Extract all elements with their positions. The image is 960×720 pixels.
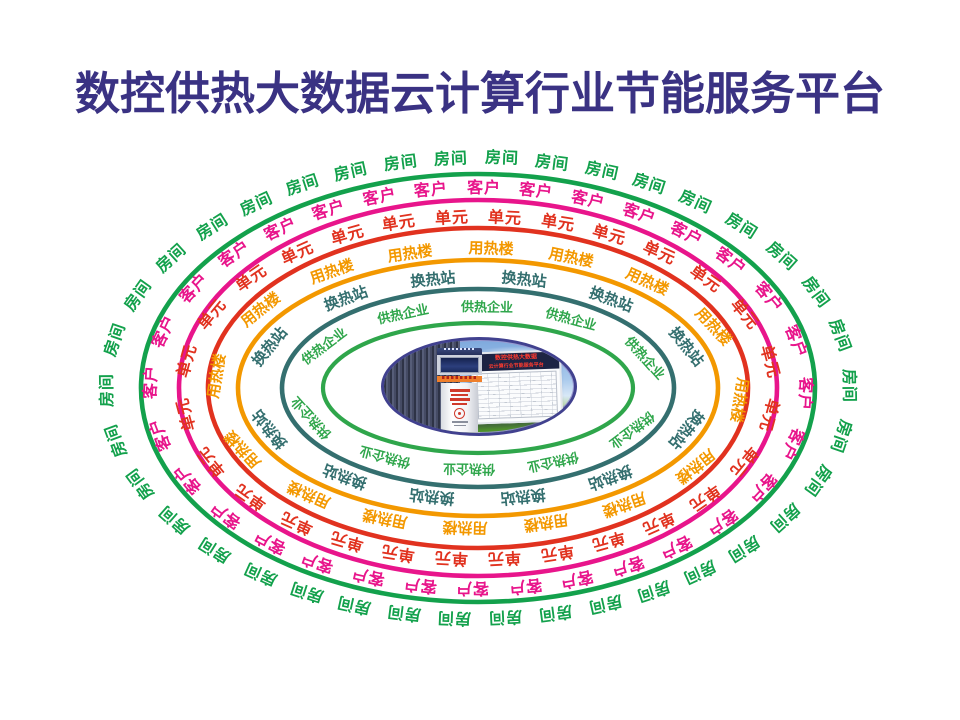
customer-label: 客户 — [744, 469, 779, 505]
unit-label: 单元 — [685, 480, 722, 513]
kiosk-header-bar — [437, 348, 482, 355]
room-label: 房间 — [488, 608, 523, 626]
room-label: 房间 — [827, 417, 853, 454]
heat-supply-enterprise-label: 供热企业 — [443, 462, 495, 476]
heat-building-label: 用热楼 — [728, 377, 750, 424]
heat-exchange-station-label: 换热站 — [666, 325, 706, 369]
kiosk-fine-print — [452, 421, 468, 423]
customer-label: 客户 — [402, 574, 438, 594]
room-label: 房间 — [825, 318, 852, 355]
unit-label: 单元 — [329, 223, 366, 248]
kiosk-red-text-mark — [452, 403, 467, 405]
board-title-line2: 云计算行业节能服务平台 — [489, 362, 544, 370]
room-label: 房间 — [766, 500, 802, 535]
kiosk-screen — [437, 355, 482, 375]
unit-label: 单元 — [487, 210, 522, 228]
unit-label: 单元 — [279, 239, 317, 267]
heat-building-label: 用热楼 — [309, 258, 356, 287]
customer-label: 客户 — [795, 377, 813, 412]
unit-label: 单元 — [589, 528, 626, 553]
unit-label: 单元 — [640, 240, 678, 269]
customer-label: 客户 — [751, 279, 785, 315]
board-title-line1: 数控供热大数据 — [495, 354, 537, 362]
room-label: 房间 — [537, 602, 573, 622]
room-label: 房间 — [288, 578, 325, 604]
heat-building-label: 用热楼 — [673, 446, 718, 486]
heat-supply-enterprise-label: 供热企业 — [527, 450, 581, 473]
unit-label: 单元 — [540, 214, 576, 235]
room-label: 房间 — [586, 592, 623, 615]
customer-label: 客户 — [362, 187, 398, 209]
heat-supply-enterprise-label: 供热企业 — [607, 409, 657, 450]
kiosk-body — [441, 383, 478, 432]
customer-label: 客户 — [310, 198, 347, 223]
customer-label: 客户 — [467, 181, 501, 197]
unit-label: 单元 — [539, 541, 575, 562]
heat-building-label: 用热楼 — [693, 305, 735, 348]
room-label: 房间 — [681, 557, 719, 586]
kiosk-machine — [437, 345, 482, 432]
customer-label: 客户 — [299, 548, 336, 574]
customer-label: 客户 — [455, 579, 489, 595]
heat-supply-enterprise-label: 供热企业 — [289, 395, 333, 442]
room-label: 房间 — [100, 373, 116, 407]
kiosk-led-strip — [437, 376, 482, 382]
heat-building-label: 用热楼 — [600, 489, 647, 518]
room-label: 房间 — [677, 188, 715, 217]
room-label: 房间 — [485, 151, 520, 168]
heat-building-label: 用热楼 — [285, 478, 332, 510]
kiosk-header-text-marks — [444, 348, 475, 350]
unit-label: 单元 — [591, 223, 628, 248]
heat-building-label: 用热楼 — [547, 246, 594, 270]
unit-label: 单元 — [435, 210, 470, 228]
customer-label: 客户 — [143, 365, 161, 400]
heat-building-label: 用热楼 — [387, 243, 434, 264]
heat-building-label: 用热楼 — [522, 512, 569, 533]
customer-label: 客户 — [657, 532, 695, 561]
kiosk-screen-display — [440, 357, 479, 373]
customer-label: 客户 — [147, 415, 174, 452]
heat-supply-enterprise-label: 供热企业 — [376, 303, 430, 326]
room-label: 房间 — [630, 172, 667, 198]
heat-exchange-station-label: 换热站 — [409, 486, 455, 505]
heat-supply-enterprise-label: 供热企业 — [358, 444, 412, 470]
unit-label: 单元 — [175, 343, 199, 380]
customer-label: 客户 — [262, 215, 300, 244]
customer-label: 客户 — [507, 575, 542, 594]
room-label: 房间 — [724, 532, 761, 564]
room-label: 房间 — [534, 154, 570, 174]
customer-label: 客户 — [558, 567, 594, 589]
heat-exchange-station-label: 换热站 — [322, 285, 369, 314]
heat-building-label: 用热楼 — [222, 427, 264, 470]
unit-label: 单元 — [726, 443, 760, 479]
kiosk-red-text-mark — [450, 398, 470, 400]
room-label: 房间 — [840, 369, 856, 403]
room-label: 房间 — [104, 421, 131, 458]
board-data-table — [477, 371, 559, 420]
customer-label: 客户 — [668, 220, 706, 250]
unit-label: 单元 — [686, 264, 723, 297]
display-board-header: 数控供热大数据 云计算行业节能服务平台 — [473, 352, 560, 372]
heat-building-label: 用热楼 — [624, 266, 671, 298]
customer-label: 客户 — [414, 182, 449, 201]
heat-supply-enterprise-label: 供热企业 — [460, 300, 512, 314]
unit-label: 单元 — [233, 263, 270, 296]
customer-label: 客户 — [776, 425, 805, 463]
customer-label: 客户 — [620, 202, 657, 228]
room-label: 房间 — [197, 533, 234, 565]
kiosk-seal — [454, 408, 465, 419]
customer-label: 客户 — [570, 189, 607, 212]
heat-building-label: 用热楼 — [443, 519, 488, 535]
customer-label: 客户 — [251, 526, 289, 556]
heat-exchange-station-label: 换热站 — [321, 462, 368, 491]
customer-label: 客户 — [518, 182, 554, 202]
heat-exchange-station-label: 换热站 — [500, 486, 546, 505]
room-label: 房间 — [238, 190, 276, 219]
unit-label: 单元 — [381, 214, 417, 235]
room-label: 房间 — [103, 322, 129, 359]
customer-label: 客户 — [170, 460, 204, 496]
unit-label: 单元 — [175, 395, 199, 432]
customer-label: 客户 — [150, 314, 179, 352]
kiosk-red-text-mark — [451, 394, 468, 396]
unit-label: 单元 — [196, 297, 230, 333]
heat-building-label: 用热楼 — [362, 506, 409, 530]
unit-label: 单元 — [434, 548, 469, 566]
heat-supply-enterprise-label: 供热企业 — [544, 306, 598, 332]
room-label: 房间 — [583, 161, 620, 184]
heat-exchange-station-label: 换热站 — [410, 271, 456, 290]
heat-supply-enterprise-label: 供热企业 — [299, 325, 349, 366]
room-label: 房间 — [154, 242, 190, 277]
room-label: 房间 — [157, 502, 193, 537]
unit-label: 单元 — [328, 528, 365, 553]
customer-label: 客户 — [703, 504, 740, 536]
unit-label: 单元 — [233, 480, 270, 513]
heat-exchange-station-label: 换热站 — [500, 271, 546, 290]
unit-label: 单元 — [380, 541, 416, 562]
room-label: 房间 — [383, 154, 419, 174]
customer-label: 客户 — [349, 564, 386, 587]
room-label: 房间 — [123, 277, 156, 314]
room-label: 房间 — [125, 465, 158, 502]
unit-label: 单元 — [639, 508, 677, 536]
unit-label: 单元 — [756, 396, 780, 433]
heat-building-label: 用热楼 — [206, 352, 228, 399]
kiosk-fine-print — [454, 425, 466, 427]
kiosk-led-text-marks — [442, 376, 477, 379]
room-label: 房间 — [333, 161, 370, 184]
unit-label: 单元 — [727, 297, 761, 333]
unit-label: 单元 — [486, 548, 521, 566]
customer-label: 客户 — [177, 271, 212, 307]
heat-exchange-station-label: 换热站 — [250, 407, 290, 451]
room-label: 房间 — [722, 211, 759, 243]
room-label: 房间 — [336, 592, 373, 615]
room-label: 房间 — [798, 275, 831, 312]
room-label: 房间 — [634, 577, 671, 603]
kiosk-seal-dot — [458, 412, 461, 415]
unit-label: 单元 — [756, 344, 780, 381]
customer-label: 客户 — [609, 552, 646, 577]
room-label: 房间 — [436, 608, 471, 625]
room-label: 房间 — [800, 462, 833, 499]
room-label: 房间 — [763, 239, 799, 274]
center-photo: 数控供热大数据 云计算行业节能服务平台 — [381, 337, 577, 436]
display-board: 数控供热大数据 云计算行业节能服务平台 — [471, 349, 563, 424]
room-label: 房间 — [242, 559, 280, 588]
heat-building-label: 用热楼 — [468, 241, 513, 257]
unit-label: 单元 — [195, 442, 229, 478]
heat-exchange-station-label: 换热站 — [250, 325, 290, 369]
unit-label: 单元 — [278, 508, 316, 537]
heat-exchange-station-label: 换热站 — [587, 462, 634, 491]
customer-label: 客户 — [782, 324, 809, 361]
kiosk-red-text-mark — [450, 389, 470, 391]
heat-supply-enterprise-label: 供热企业 — [623, 334, 667, 381]
room-label: 房间 — [194, 212, 231, 244]
customer-label: 客户 — [712, 245, 749, 278]
room-label: 房间 — [284, 173, 321, 199]
heat-exchange-station-label: 换热站 — [666, 407, 706, 451]
customer-label: 客户 — [207, 497, 244, 530]
heat-exchange-station-label: 换热站 — [588, 285, 635, 314]
room-label: 房间 — [386, 602, 422, 622]
customer-label: 客户 — [216, 239, 253, 271]
slide: 数控供热大数据云计算行业节能服务平台 房间房间房间房间房间房间房间房间房间房间房… — [0, 0, 960, 720]
room-label: 房间 — [433, 151, 468, 169]
